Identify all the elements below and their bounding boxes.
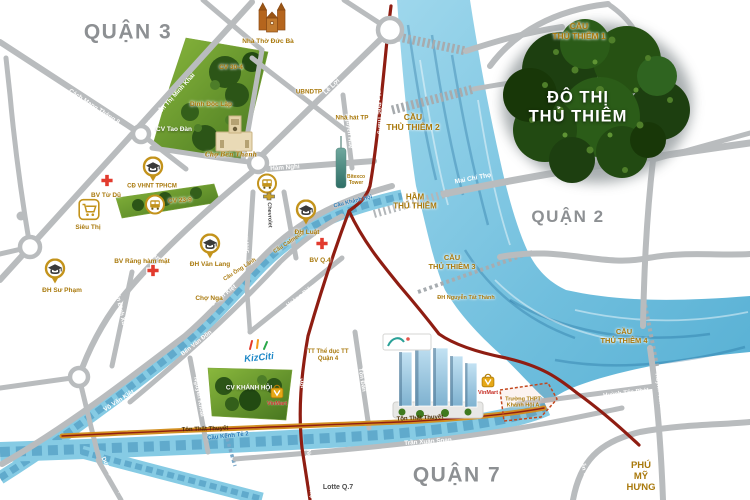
park-khanh-hoi: [208, 368, 292, 420]
thu-thiem-tree-cluster: [502, 19, 692, 183]
map-canvas: QUẬN 3QUẬN 2QUẬN 7PHÚ MỸ HƯNGĐÔ THỊ THỦ …: [0, 0, 750, 500]
cathedral-building: [259, 3, 285, 32]
map-artwork: [0, 0, 750, 500]
bitexco-tower-building: [336, 136, 346, 188]
